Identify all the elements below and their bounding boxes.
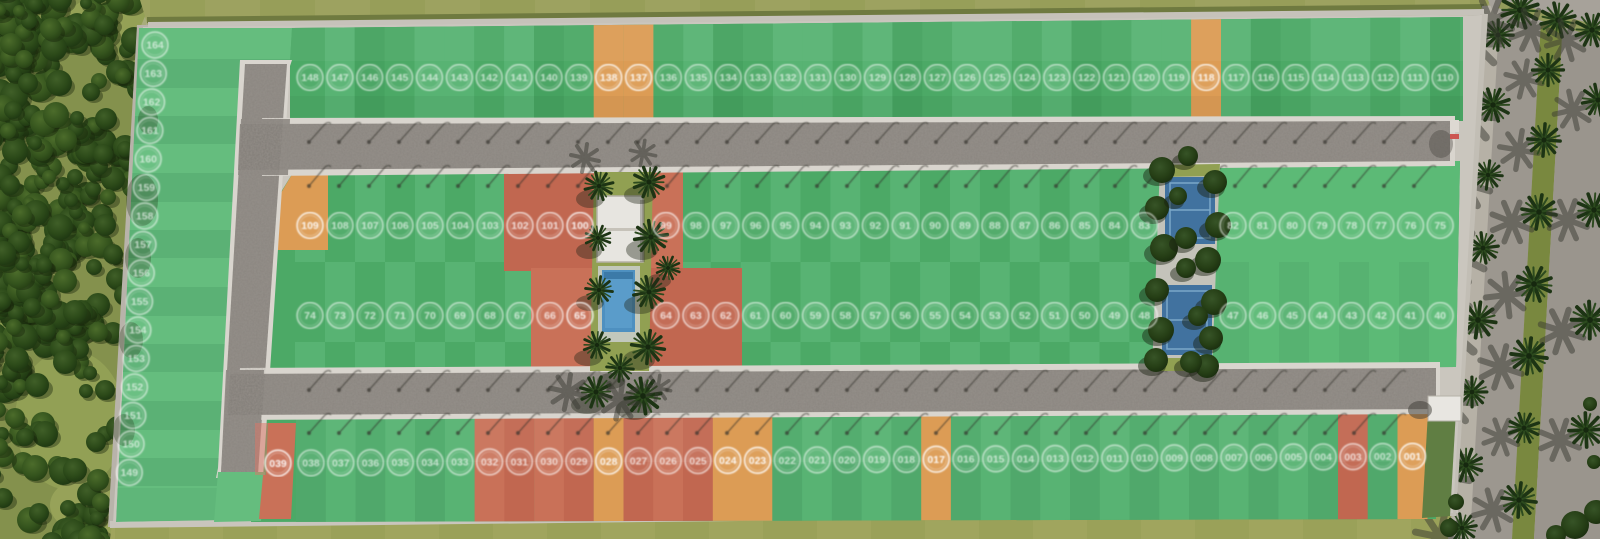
- svg-text:013: 013: [1046, 453, 1064, 465]
- svg-text:022: 022: [779, 455, 797, 467]
- svg-text:129: 129: [869, 72, 887, 84]
- svg-text:126: 126: [958, 72, 976, 84]
- svg-text:147: 147: [331, 72, 349, 84]
- svg-text:146: 146: [361, 72, 379, 84]
- svg-text:143: 143: [451, 72, 469, 84]
- svg-text:162: 162: [143, 97, 161, 109]
- svg-text:52: 52: [1019, 310, 1031, 322]
- svg-text:155: 155: [131, 296, 149, 308]
- svg-text:42: 42: [1375, 310, 1387, 322]
- svg-text:40: 40: [1434, 310, 1446, 322]
- svg-text:48: 48: [1139, 310, 1151, 322]
- svg-text:57: 57: [869, 310, 881, 322]
- svg-text:50: 50: [1079, 310, 1091, 322]
- svg-text:61: 61: [750, 310, 762, 322]
- svg-text:161: 161: [141, 125, 159, 137]
- svg-text:018: 018: [898, 454, 916, 466]
- svg-text:140: 140: [540, 72, 558, 84]
- svg-text:100: 100: [571, 220, 589, 232]
- svg-text:102: 102: [511, 220, 529, 232]
- svg-text:119: 119: [1168, 72, 1185, 84]
- svg-text:015: 015: [987, 454, 1005, 466]
- svg-text:66: 66: [544, 310, 556, 322]
- svg-text:010: 010: [1136, 453, 1154, 465]
- svg-text:83: 83: [1139, 220, 1151, 232]
- svg-text:145: 145: [391, 72, 409, 84]
- svg-text:44: 44: [1316, 310, 1328, 322]
- svg-text:58: 58: [840, 310, 852, 322]
- svg-text:62: 62: [720, 310, 732, 322]
- svg-text:039: 039: [269, 458, 287, 470]
- svg-text:025: 025: [689, 455, 707, 467]
- svg-text:148: 148: [301, 72, 319, 84]
- svg-text:111: 111: [1407, 72, 1424, 84]
- svg-text:64: 64: [660, 310, 672, 322]
- svg-text:49: 49: [1109, 310, 1121, 322]
- svg-text:41: 41: [1405, 310, 1417, 322]
- svg-text:136: 136: [660, 72, 678, 84]
- svg-text:70: 70: [424, 310, 436, 322]
- svg-text:021: 021: [808, 455, 826, 467]
- svg-text:153: 153: [127, 353, 145, 365]
- svg-text:108: 108: [331, 220, 349, 232]
- svg-text:94: 94: [810, 220, 822, 232]
- svg-text:96: 96: [750, 220, 762, 232]
- svg-text:107: 107: [361, 220, 379, 232]
- svg-text:99: 99: [660, 220, 672, 232]
- svg-text:85: 85: [1079, 220, 1091, 232]
- svg-text:79: 79: [1316, 220, 1328, 232]
- svg-text:80: 80: [1286, 220, 1298, 232]
- svg-text:81: 81: [1257, 220, 1269, 232]
- svg-text:152: 152: [126, 382, 144, 394]
- svg-text:132: 132: [779, 72, 797, 84]
- svg-text:032: 032: [481, 457, 499, 469]
- svg-text:150: 150: [122, 439, 140, 451]
- svg-text:142: 142: [480, 72, 498, 84]
- svg-text:118: 118: [1198, 72, 1215, 84]
- svg-text:75: 75: [1434, 220, 1446, 232]
- svg-text:65: 65: [574, 310, 586, 322]
- svg-text:123: 123: [1048, 72, 1066, 84]
- svg-text:120: 120: [1138, 72, 1156, 84]
- svg-text:002: 002: [1374, 451, 1392, 463]
- svg-text:67: 67: [514, 310, 526, 322]
- svg-text:003: 003: [1344, 451, 1362, 463]
- svg-text:56: 56: [899, 310, 911, 322]
- svg-text:038: 038: [302, 458, 320, 470]
- svg-text:92: 92: [869, 220, 881, 232]
- svg-text:98: 98: [690, 220, 702, 232]
- svg-text:110: 110: [1437, 72, 1454, 84]
- svg-text:014: 014: [1017, 453, 1035, 465]
- svg-text:87: 87: [1019, 220, 1031, 232]
- svg-text:036: 036: [362, 457, 380, 469]
- svg-text:114: 114: [1317, 72, 1334, 84]
- svg-text:164: 164: [146, 40, 164, 52]
- svg-text:141: 141: [510, 72, 528, 84]
- svg-text:163: 163: [145, 68, 163, 80]
- svg-text:012: 012: [1076, 453, 1094, 465]
- svg-text:037: 037: [332, 458, 350, 470]
- svg-text:69: 69: [454, 310, 466, 322]
- svg-text:73: 73: [334, 310, 346, 322]
- svg-text:68: 68: [484, 310, 496, 322]
- svg-text:035: 035: [392, 457, 410, 469]
- svg-text:106: 106: [391, 220, 409, 232]
- svg-text:125: 125: [988, 72, 1006, 84]
- svg-text:78: 78: [1346, 220, 1358, 232]
- svg-text:97: 97: [720, 220, 732, 232]
- svg-text:127: 127: [929, 72, 947, 84]
- svg-text:45: 45: [1286, 310, 1298, 322]
- svg-text:91: 91: [899, 220, 911, 232]
- svg-text:112: 112: [1377, 72, 1394, 84]
- svg-text:144: 144: [421, 72, 439, 84]
- svg-text:151: 151: [124, 410, 142, 422]
- svg-text:157: 157: [134, 239, 152, 251]
- svg-text:134: 134: [719, 72, 737, 84]
- svg-text:008: 008: [1195, 452, 1213, 464]
- svg-text:026: 026: [659, 456, 677, 468]
- svg-text:028: 028: [600, 456, 618, 468]
- svg-text:135: 135: [690, 72, 708, 84]
- svg-text:105: 105: [421, 220, 439, 232]
- svg-text:88: 88: [989, 220, 1001, 232]
- svg-text:011: 011: [1106, 453, 1123, 465]
- svg-text:76: 76: [1405, 220, 1417, 232]
- svg-text:027: 027: [630, 456, 648, 468]
- svg-text:124: 124: [1018, 72, 1036, 84]
- svg-text:82: 82: [1227, 220, 1239, 232]
- svg-text:63: 63: [690, 310, 702, 322]
- svg-text:51: 51: [1049, 310, 1061, 322]
- svg-text:137: 137: [630, 72, 648, 84]
- svg-text:104: 104: [451, 220, 469, 232]
- svg-text:54: 54: [959, 310, 971, 322]
- svg-text:020: 020: [838, 454, 856, 466]
- svg-text:128: 128: [899, 72, 917, 84]
- svg-text:016: 016: [957, 454, 975, 466]
- svg-text:55: 55: [929, 310, 941, 322]
- svg-text:93: 93: [840, 220, 852, 232]
- svg-text:004: 004: [1314, 452, 1332, 464]
- svg-text:024: 024: [719, 455, 737, 467]
- svg-text:59: 59: [810, 310, 822, 322]
- svg-text:130: 130: [839, 72, 857, 84]
- svg-text:001: 001: [1404, 451, 1422, 463]
- svg-text:71: 71: [394, 310, 406, 322]
- svg-text:158: 158: [136, 211, 154, 223]
- svg-text:033: 033: [451, 457, 469, 469]
- svg-text:74: 74: [304, 310, 316, 322]
- svg-text:006: 006: [1255, 452, 1273, 464]
- svg-text:113: 113: [1347, 72, 1364, 84]
- svg-text:030: 030: [540, 456, 558, 468]
- svg-text:116: 116: [1257, 72, 1274, 84]
- svg-text:023: 023: [749, 455, 767, 467]
- svg-text:031: 031: [511, 456, 529, 468]
- svg-text:60: 60: [780, 310, 792, 322]
- svg-text:154: 154: [129, 325, 147, 337]
- svg-text:121: 121: [1108, 72, 1126, 84]
- svg-text:156: 156: [133, 268, 151, 280]
- svg-text:029: 029: [570, 456, 588, 468]
- svg-text:007: 007: [1225, 452, 1243, 464]
- svg-text:53: 53: [989, 310, 1001, 322]
- svg-text:95: 95: [780, 220, 792, 232]
- svg-text:034: 034: [421, 457, 439, 469]
- svg-text:43: 43: [1346, 310, 1358, 322]
- svg-text:017: 017: [927, 454, 945, 466]
- svg-text:90: 90: [929, 220, 941, 232]
- svg-text:117: 117: [1228, 72, 1245, 84]
- svg-text:149: 149: [121, 467, 139, 479]
- svg-text:109: 109: [301, 220, 319, 232]
- svg-text:84: 84: [1109, 220, 1121, 232]
- svg-text:46: 46: [1257, 310, 1269, 322]
- svg-text:131: 131: [809, 72, 827, 84]
- svg-text:009: 009: [1166, 453, 1184, 465]
- svg-text:86: 86: [1049, 220, 1061, 232]
- svg-text:115: 115: [1287, 72, 1304, 84]
- svg-text:138: 138: [600, 72, 618, 84]
- svg-text:133: 133: [749, 72, 767, 84]
- svg-text:159: 159: [138, 182, 156, 194]
- svg-text:72: 72: [364, 310, 376, 322]
- svg-text:103: 103: [481, 220, 499, 232]
- svg-text:101: 101: [541, 220, 559, 232]
- svg-text:77: 77: [1375, 220, 1387, 232]
- svg-text:122: 122: [1078, 72, 1096, 84]
- svg-text:019: 019: [868, 454, 886, 466]
- svg-text:139: 139: [570, 72, 588, 84]
- svg-text:160: 160: [139, 154, 157, 166]
- svg-text:47: 47: [1227, 310, 1239, 322]
- svg-text:89: 89: [959, 220, 971, 232]
- svg-text:005: 005: [1285, 452, 1303, 464]
